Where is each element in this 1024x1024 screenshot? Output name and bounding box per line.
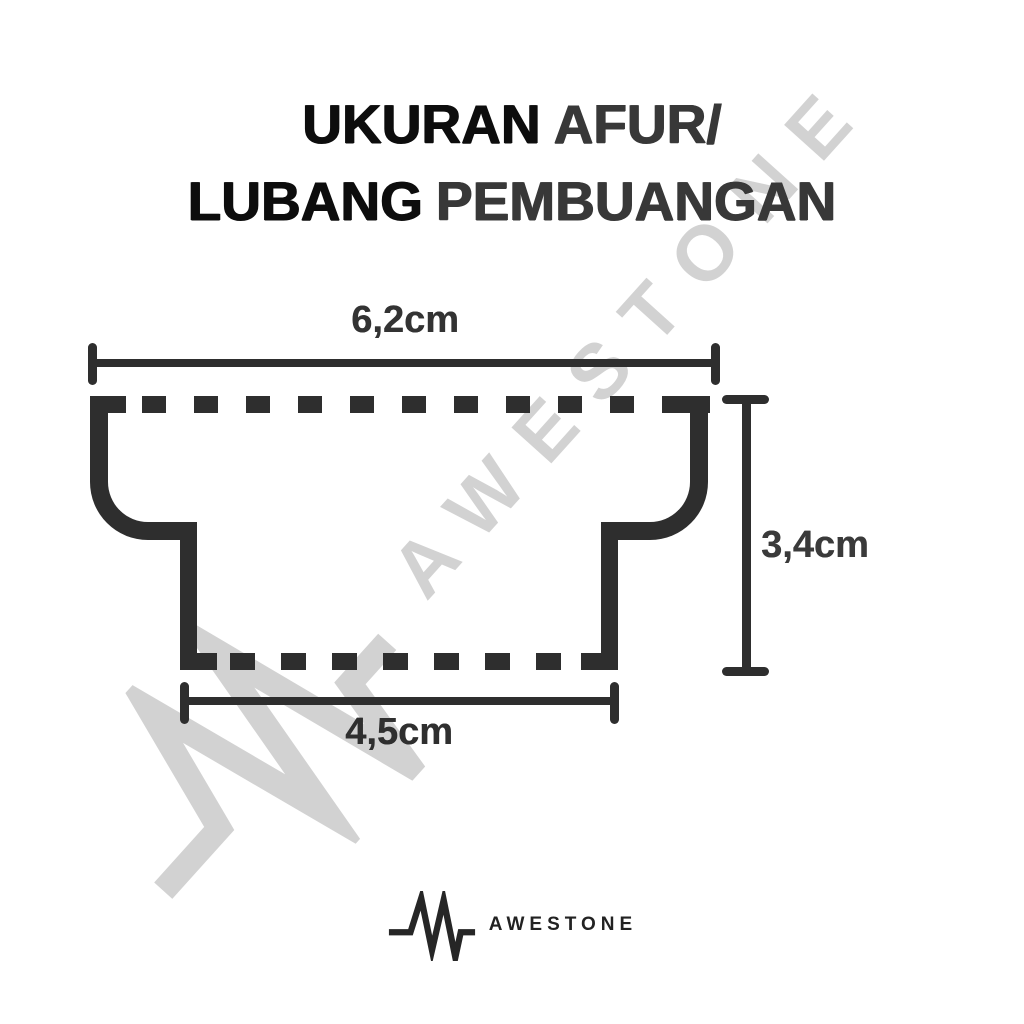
profile-lower-wall-right bbox=[581, 522, 618, 670]
profile-dashed-bottom-edge bbox=[217, 653, 581, 670]
title-word-afur: AFUR/ bbox=[554, 93, 722, 155]
infographic-canvas: AWESTONE UKURANAFUR/ LUBANGPEMBUANGAN 6,… bbox=[0, 0, 1024, 1024]
dimension-line-top bbox=[92, 359, 718, 367]
dimension-label-bottom-width: 4,5cm bbox=[184, 711, 614, 754]
dimension-tick-top-left bbox=[88, 343, 97, 385]
dimension-line-depth bbox=[742, 400, 751, 672]
dimension-label-depth: 3,4cm bbox=[761, 524, 869, 567]
dimension-label-top-width: 6,2cm bbox=[92, 299, 718, 342]
dimension-tick-top-right bbox=[711, 343, 720, 385]
pulse-wave-icon bbox=[387, 891, 477, 961]
dimension-line-bottom bbox=[184, 697, 614, 705]
title-word-pembuangan: PEMBUANGAN bbox=[436, 170, 836, 232]
brand-name: AWESTONE bbox=[489, 914, 637, 936]
title-line-1: UKURANAFUR/ bbox=[0, 86, 1024, 163]
title-word-lubang: LUBANG bbox=[188, 170, 423, 232]
dimension-tick-depth-bottom bbox=[722, 667, 769, 676]
brand-logo: AWESTONE bbox=[0, 886, 1024, 966]
profile-lower-wall-left bbox=[180, 522, 217, 670]
profile-upper-wall-right bbox=[618, 396, 708, 540]
profile-upper-wall-left bbox=[90, 396, 197, 540]
page-title: UKURANAFUR/ LUBANGPEMBUANGAN bbox=[0, 86, 1024, 240]
title-line-2: LUBANGPEMBUANGAN bbox=[0, 163, 1024, 240]
dimension-tick-depth-top bbox=[722, 395, 769, 404]
title-word-ukuran: UKURAN bbox=[302, 93, 540, 155]
